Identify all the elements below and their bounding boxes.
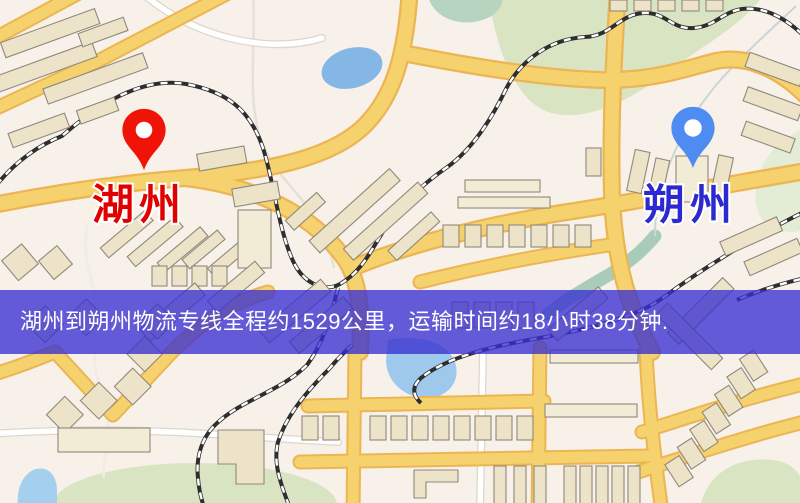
map-screenshot: 湖州 朔州 湖州到朔州物流专线全程约1529公里，运输时间约18小时38分钟. — [0, 0, 800, 503]
route-banner-text: 湖州到朔州物流专线全程约1529公里，运输时间约18小时38分钟. — [20, 309, 669, 334]
map-canvas: 湖州 朔州 — [0, 0, 800, 503]
route-banner: 湖州到朔州物流专线全程约1529公里，运输时间约18小时38分钟. — [0, 290, 800, 354]
destination-label: 朔州 — [643, 181, 737, 228]
origin-label: 湖州 — [92, 181, 186, 228]
